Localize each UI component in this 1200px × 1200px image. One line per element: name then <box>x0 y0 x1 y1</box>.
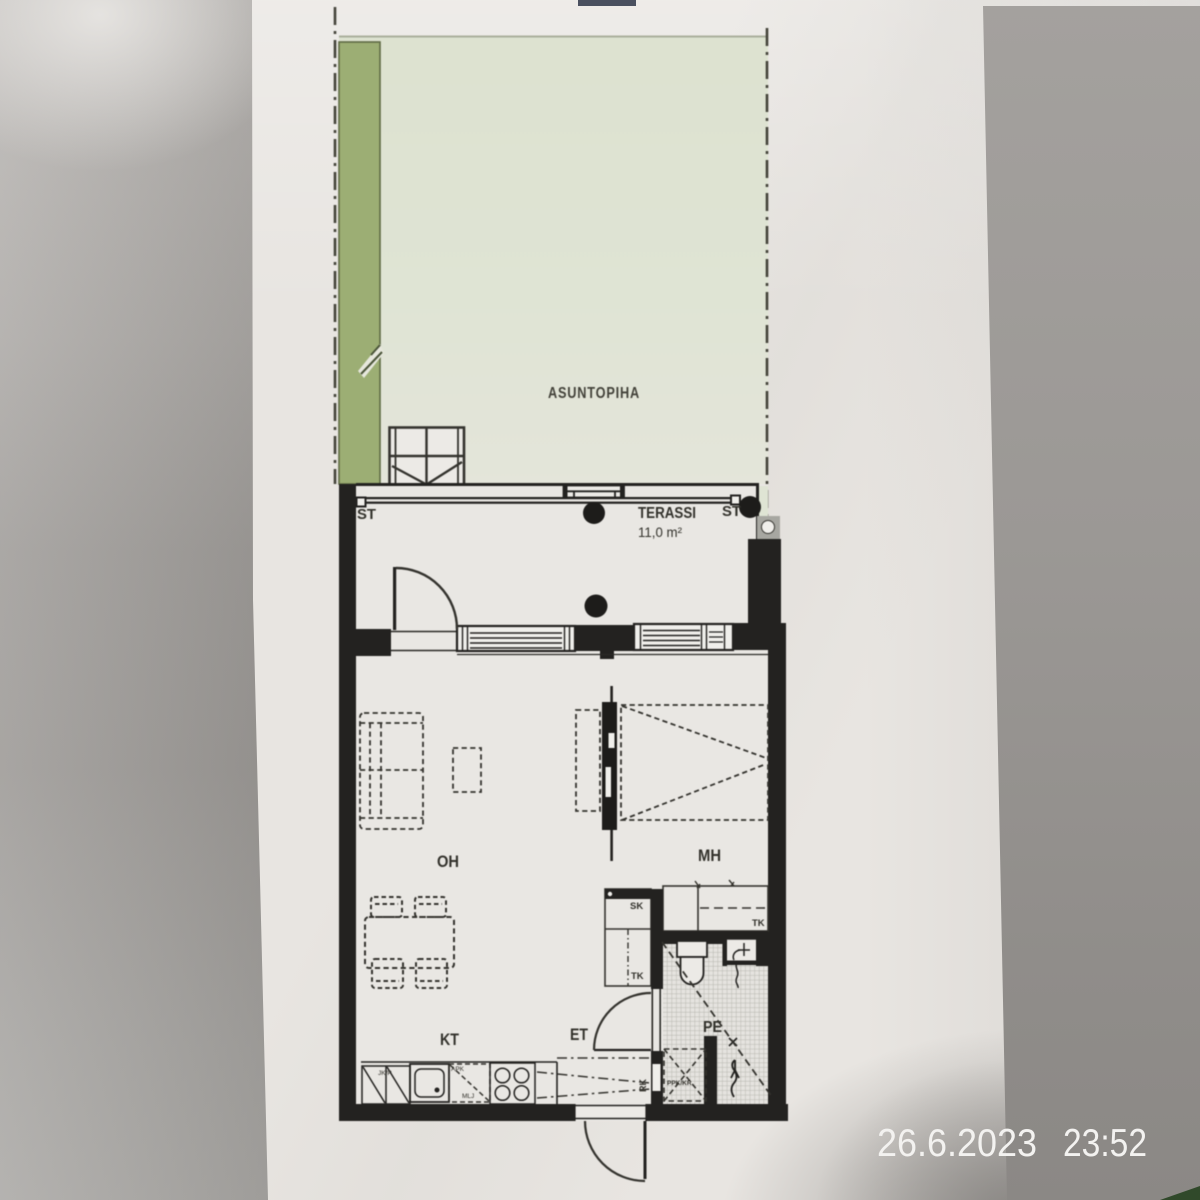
svg-text:23:52: 23:52 <box>1063 1122 1147 1165</box>
svg-text:26.6.2023: 26.6.2023 <box>877 1122 1037 1165</box>
